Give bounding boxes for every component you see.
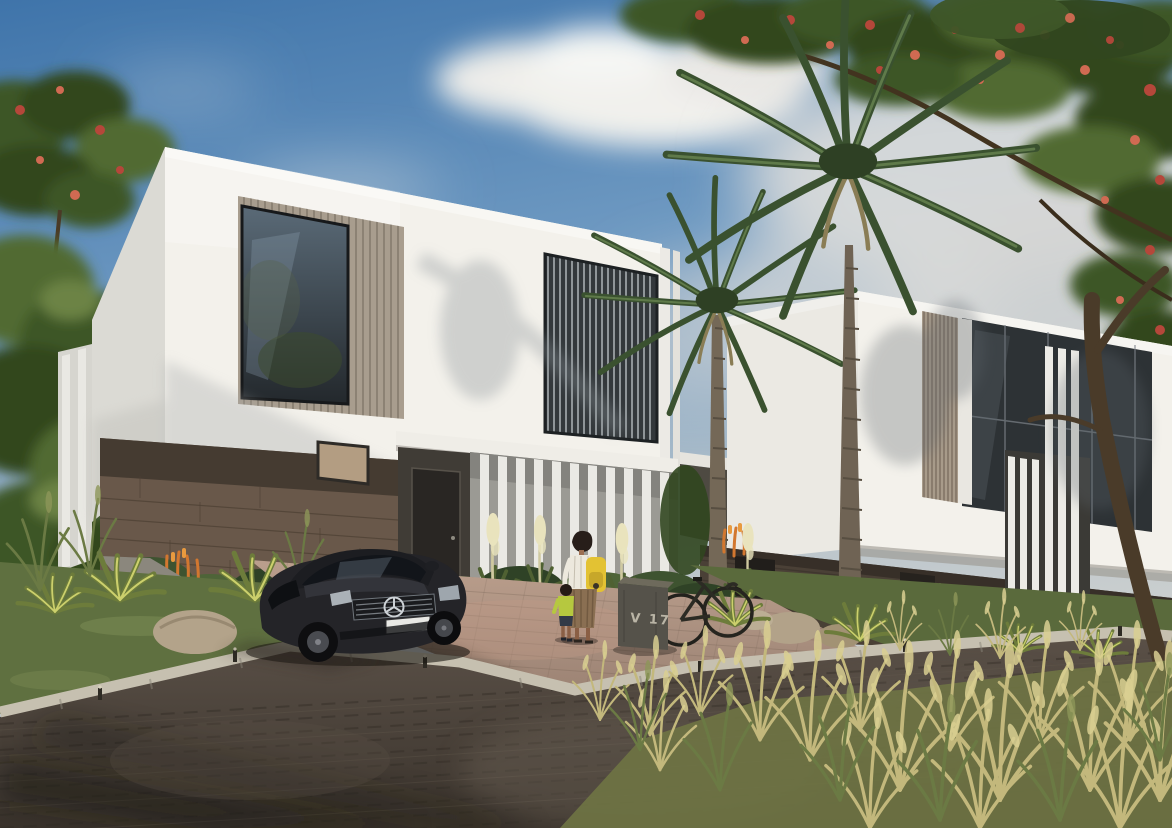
villa-marker-label: V 17 — [630, 611, 672, 629]
corner-fin — [660, 247, 670, 470]
bronze-window — [318, 442, 368, 484]
door-handle — [451, 536, 455, 540]
villa-street-render: V 17 — [0, 0, 1172, 828]
side-mirror — [425, 561, 439, 571]
woman-neck — [579, 550, 584, 555]
bike-seat — [693, 577, 702, 581]
child-hair — [560, 584, 572, 596]
wheel-front-right — [427, 611, 461, 645]
backpack-detail — [593, 583, 599, 589]
child-shorts — [559, 616, 573, 626]
villa-right-side-face — [727, 291, 858, 562]
villa-marker: V 17 — [613, 577, 677, 656]
render-canvas: V 17 — [0, 0, 1172, 828]
wheel-front-left — [298, 622, 338, 662]
child-shirt — [558, 596, 574, 616]
